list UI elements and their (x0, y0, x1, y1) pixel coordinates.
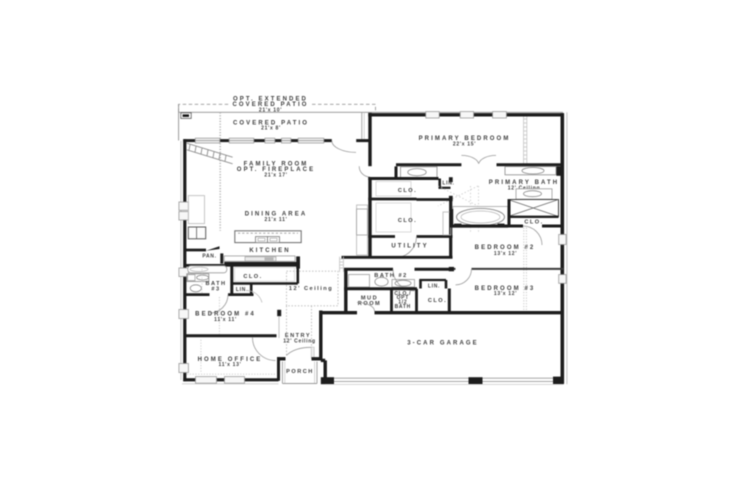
svg-text:UTILITY: UTILITY (391, 244, 428, 250)
svg-text:21'x 11': 21'x 11' (265, 217, 288, 223)
svg-text:LIN.: LIN. (236, 287, 248, 293)
svg-text:PAN.: PAN. (202, 254, 216, 260)
svg-text:KITCHEN: KITCHEN (249, 248, 290, 254)
svg-text:#3: #3 (211, 286, 220, 292)
svg-text:21'x 17': 21'x 17' (264, 172, 287, 178)
svg-text:LIN.: LIN. (442, 181, 454, 187)
svg-text:BATH: BATH (395, 304, 411, 310)
svg-text:12' Ceiling: 12' Ceiling (283, 338, 316, 344)
svg-text:CLO.: CLO. (243, 274, 262, 280)
svg-text:CLO.: CLO. (398, 188, 417, 194)
svg-text:CLO.: CLO. (398, 218, 417, 224)
svg-text:11'x 11': 11'x 11' (214, 317, 237, 323)
svg-text:11'x 13': 11'x 13' (219, 362, 242, 368)
svg-text:13'x 12': 13'x 12' (494, 251, 517, 257)
svg-text:12' Ceiling: 12' Ceiling (289, 286, 333, 292)
svg-text:22'x 15': 22'x 15' (453, 142, 476, 148)
svg-text:PORCH: PORCH (286, 369, 314, 375)
svg-text:LIN.: LIN. (428, 284, 440, 290)
svg-text:ROOM: ROOM (358, 301, 381, 307)
svg-text:13'x 12': 13'x 12' (494, 291, 517, 297)
svg-text:CLO.: CLO. (524, 219, 543, 225)
svg-text:3-CAR GARAGE: 3-CAR GARAGE (407, 341, 479, 347)
svg-text:CLO.: CLO. (428, 298, 447, 304)
svg-text:21'x 8': 21'x 8' (261, 126, 281, 132)
